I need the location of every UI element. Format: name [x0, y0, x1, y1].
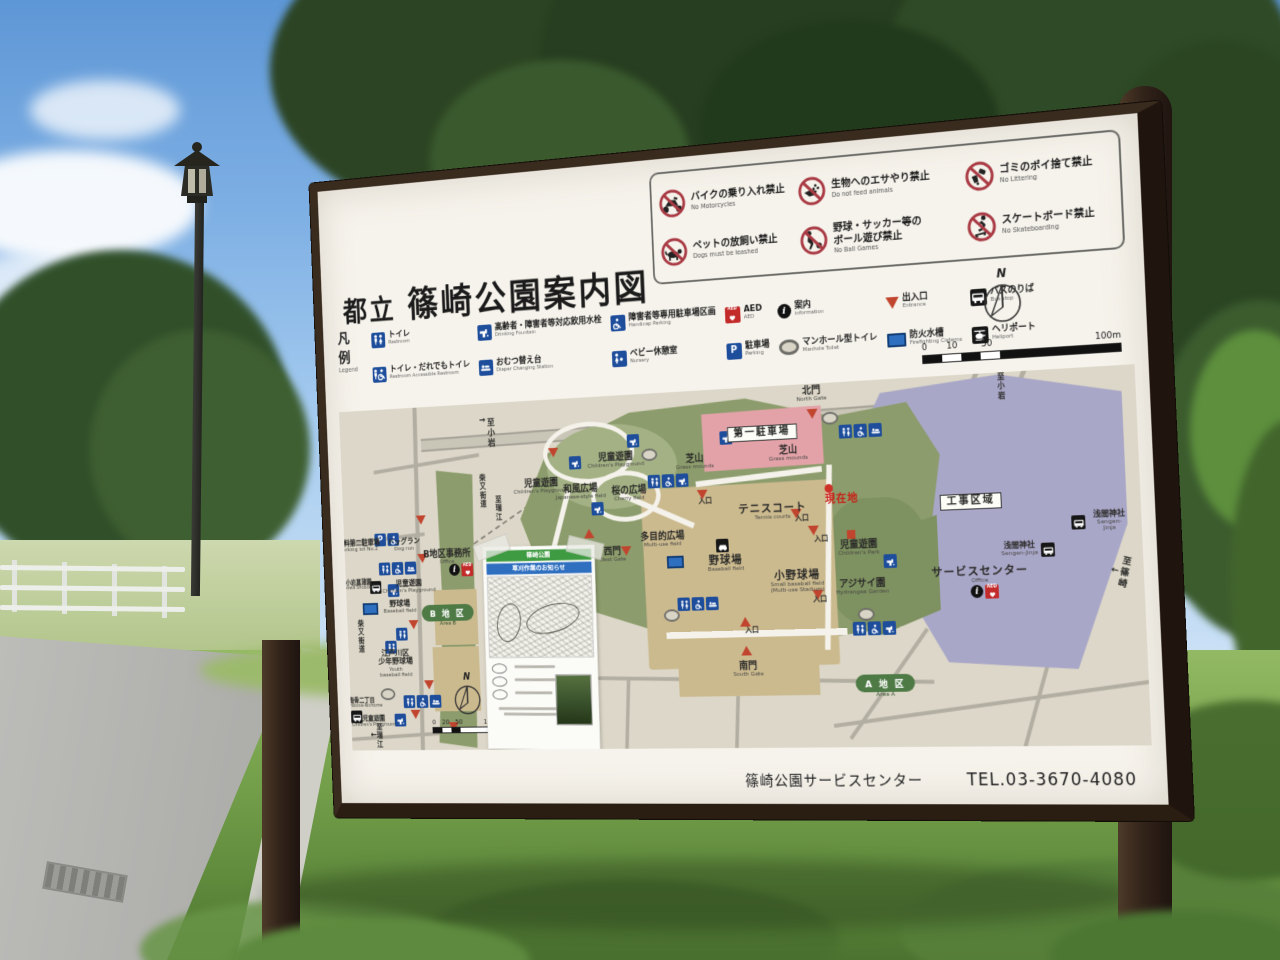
facility-icons — [853, 621, 897, 636]
bus-stop-icon — [1071, 515, 1086, 530]
label-sengen-jinja-2: 浅間神社Sengen-Jinja — [1001, 541, 1039, 558]
facility-icons — [569, 456, 582, 470]
facility-icons — [396, 628, 408, 641]
lamp-head — [181, 166, 213, 196]
info-icon: i — [970, 585, 983, 598]
nursery-icon — [611, 350, 626, 367]
label-shibamata-kaido-sw: 柴又街道 — [357, 620, 365, 655]
legend-heading: 凡例 Legend — [337, 324, 359, 394]
label-koiwa-shobuen-busstop: 小岩菖蒲園Koiwa Shobuen — [343, 579, 374, 591]
scale-tick: 10 — [946, 341, 957, 352]
restroom-icon — [853, 622, 867, 636]
restroom-icon — [648, 475, 661, 489]
no-littering-icon — [964, 159, 994, 191]
compass-rose-icon — [452, 683, 483, 717]
legend-item-parking: P 駐車場Parking — [726, 330, 771, 369]
entrance-marker — [424, 680, 434, 689]
label-grass-mounds-west: 芝山Grass mounds — [675, 453, 714, 472]
diaper-changing-icon — [478, 359, 493, 376]
lamp-roof — [174, 150, 220, 166]
restroom-icon — [371, 332, 385, 348]
diaper-changing-icon — [430, 695, 442, 708]
label-to-koiwa-nw: ↑ — [476, 416, 485, 425]
drinking-fountain-icon — [627, 434, 640, 448]
label-childrens-playground-mid: 児童遊園Children's Playground — [587, 451, 644, 470]
restroom-icon — [396, 628, 408, 641]
accessible-icon — [853, 424, 867, 438]
accessible-icon — [416, 695, 428, 708]
info-icon: i — [777, 303, 791, 318]
label-childrens-playground-b: 児童遊園Children's Playground — [382, 579, 436, 595]
notice-photo — [555, 674, 592, 725]
manhole-toilet-icon — [778, 339, 799, 356]
board-frame: 都立篠崎公園案内図 バイクの乗り入れ禁止No Motorcycles 生物へのエ… — [309, 101, 1194, 822]
label-entrance: 入口 — [795, 514, 809, 523]
accessible-icon — [691, 597, 704, 611]
notice-sketch-map — [487, 575, 594, 658]
label-to-mizue-s: 至瑞江↓ — [367, 723, 383, 749]
restroom-icon — [677, 597, 690, 611]
label-grass-mounds-east: 芝山Grass mounds — [768, 444, 808, 463]
label-baseball-field: 野球場Baseball field — [707, 553, 744, 573]
notice-title: 草刈作業のお知らせ — [486, 562, 591, 575]
accessible-restroom-icon — [372, 366, 386, 382]
label-multiuse-field: 多目的広場Multi-use field — [640, 531, 685, 549]
accessible-icon — [868, 621, 882, 635]
label-entrance: 入口 — [813, 595, 827, 603]
sign-board: 都立篠崎公園案内図 バイクの乗り入れ禁止No Motorcycles 生物へのエ… — [309, 101, 1194, 822]
entrance-icon — [885, 297, 899, 310]
label-dog-run: ドッグランDog run — [387, 537, 420, 552]
cistern-icon — [363, 603, 379, 615]
label-parking-no2: 有料第二駐車場Parking lot No.2 — [339, 539, 380, 554]
restroom-icon — [403, 695, 415, 708]
info-icon: i — [449, 564, 460, 576]
lamp-pane — [199, 169, 206, 193]
lamp-collar — [187, 196, 207, 203]
legend-heading-en: Legend — [339, 366, 358, 375]
label-area-b: B 地 区Area B — [421, 604, 473, 622]
service-center-icons: i AED — [970, 584, 999, 599]
compass: N — [980, 265, 1025, 327]
legend-divider — [363, 325, 366, 390]
label-north-gate: 北門North Gate — [796, 385, 827, 404]
facility-icons — [677, 597, 718, 612]
no-loose-pets-icon — [660, 236, 688, 267]
legend-item-aed: AED AEDAED — [724, 294, 769, 334]
cloud — [30, 80, 180, 140]
label-small-baseball: 小野球場Small baseball field (Multi-use Stad… — [770, 568, 825, 595]
aed-icon: AED — [724, 306, 740, 323]
facility-icons — [394, 714, 406, 727]
label-youth-baseball: 江戸川区 少年野球場Youth baseball field — [378, 649, 414, 679]
drinking-fountain-icon — [883, 554, 897, 568]
label-sakura-hiroba: 桜の広場Cherry field — [611, 485, 647, 503]
restroom-icon — [379, 562, 391, 575]
notice-bullet — [492, 677, 507, 687]
notice-bullet — [492, 664, 507, 674]
aed-icon: AED — [461, 563, 473, 576]
diaper-changing-icon — [706, 597, 719, 611]
entrance-marker — [411, 710, 421, 719]
label-childrens-park-east: 児童遊園Children's Park — [838, 539, 880, 558]
drinking-fountain-icon — [676, 473, 689, 487]
label-entrance: 入口 — [698, 497, 712, 505]
street — [625, 679, 630, 749]
label-area-a: A 地 区Area A — [855, 674, 915, 693]
legend-item-manhole: マンホール型トイレManhole Toilet — [778, 323, 878, 366]
entrance-marker — [741, 646, 752, 656]
drinking-fountain-icon — [591, 502, 604, 516]
label-to-koiwa-ne: 至小岩 — [996, 372, 1005, 401]
scale-tick: 0 — [922, 343, 928, 353]
label-shibamata-kaido-nw: 柴又街道 — [478, 474, 486, 509]
compass-rose-icon — [980, 280, 1025, 327]
facility-icons — [379, 561, 417, 575]
bus-stop-tile — [1071, 515, 1086, 530]
board-footer: 篠崎公園サービスセンター TEL.03-3670-4080 — [745, 769, 1138, 790]
entrance-marker — [409, 620, 419, 629]
facility-icons — [403, 695, 441, 708]
diaper-changing-icon — [405, 561, 417, 574]
label-entrance: 入口 — [814, 535, 828, 544]
facility-icons — [716, 539, 729, 553]
label-baseball-b: 野球場Baseball field — [383, 600, 416, 615]
scale-tick: 100m — [1095, 330, 1121, 342]
label-south-gate: 南門South Gate — [733, 661, 764, 678]
manhole-toilet-icon — [381, 688, 396, 700]
no-skateboarding-icon — [966, 210, 996, 242]
legend-item-nursery: ベビー休憩室Nursery — [611, 334, 718, 377]
facility-icons — [591, 502, 604, 516]
handicap-parking-icon — [610, 314, 625, 331]
entrance-marker — [416, 515, 426, 525]
accessible-icon — [662, 474, 675, 488]
facility-icons — [648, 473, 689, 488]
facility-icons — [883, 554, 897, 568]
legend-item-diaper: おむつ替え台Diaper Changing Station — [478, 342, 604, 386]
facility-icon — [716, 539, 729, 553]
aed-icon: AED — [985, 584, 999, 598]
entrance-marker — [584, 529, 595, 539]
service-center-name: 篠崎公園サービスセンター — [745, 770, 924, 791]
lamp-pane — [188, 169, 195, 193]
entrance-marker — [806, 409, 817, 419]
label-shishibone-busstop: 鹿骨二丁目Shishibone-Nichome — [341, 697, 382, 709]
label-hydrangea-garden: アジサイ園Hydrangea Garden — [835, 578, 889, 597]
legend-heading-jp: 凡例 — [337, 328, 358, 367]
board-panel: 都立篠崎公園案内図 バイクの乗り入れ禁止No Motorcycles 生物へのエ… — [318, 113, 1169, 805]
notice-bullet — [492, 690, 507, 700]
label-construction-area: 工事区域 — [940, 492, 1002, 510]
diaper-changing-icon — [868, 423, 882, 437]
label-wafu-hiroba: 和風広場Japanese-style field — [555, 483, 606, 502]
no-feeding-icon — [798, 175, 827, 207]
prohibition-box: バイクの乗り入れ禁止No Motorcycles 生物へのエサやり禁止Do no… — [649, 129, 1125, 285]
cistern-icon — [667, 556, 684, 569]
label-b-office: B地区事務所Office — [423, 548, 471, 566]
label-sengen-jinja-1: 浅間神社Sengen-Jinja — [1093, 509, 1126, 533]
scale-tick: 50 — [981, 339, 993, 350]
closed-gate-marker — [847, 530, 856, 539]
cistern-icon — [887, 333, 906, 348]
facility-icons — [627, 434, 640, 448]
accessible-icon — [392, 562, 404, 575]
label-to-koiwa-nw-text: 至小岩 — [484, 418, 493, 449]
facility-icons — [839, 423, 882, 439]
drinking-fountain-icon — [883, 621, 897, 635]
label-entrance: 入口 — [745, 626, 759, 634]
rule-dogs-leashed: ペットの放飼い禁止Dogs must be leashed — [660, 217, 796, 277]
sign-post-left — [262, 640, 300, 960]
label-to-mizue-ne: 至瑞江 — [494, 495, 502, 522]
park-map: P — [339, 364, 1152, 750]
entrance-marker — [548, 448, 559, 458]
parking-icon: P — [726, 342, 742, 359]
legend-item-entrance: 出入口Entrance — [885, 279, 962, 322]
restroom-icon — [839, 424, 853, 438]
phone-number: TEL.03-3670-4080 — [967, 770, 1138, 790]
street — [374, 453, 480, 475]
drinking-fountain-icon — [477, 324, 492, 341]
bus-stop-icon — [1041, 542, 1055, 557]
drinking-fountain-icon — [394, 714, 406, 727]
drinking-fountain-icon — [569, 456, 582, 470]
bus-stop-tile — [1041, 542, 1055, 557]
label-service-center: サービスセンターOffice — [931, 563, 1028, 585]
label-current-location: 現在地 — [825, 493, 859, 506]
no-motorcycle-icon — [658, 188, 686, 219]
no-ball-games-icon — [800, 224, 829, 255]
legend-item-accessible-toilet: トイレ・だれでもトイレRestroom Accessible Restroom — [372, 351, 471, 392]
compass-n-label: N — [996, 266, 1006, 281]
map-compass: N — [452, 672, 484, 717]
far-field — [0, 540, 320, 650]
notice-sheet: 篠崎公園 草刈作業のお知らせ — [483, 545, 601, 750]
photo-scene: 都立篠崎公園案内図 バイクの乗り入れ禁止No Motorcycles 生物へのエ… — [0, 0, 1280, 960]
